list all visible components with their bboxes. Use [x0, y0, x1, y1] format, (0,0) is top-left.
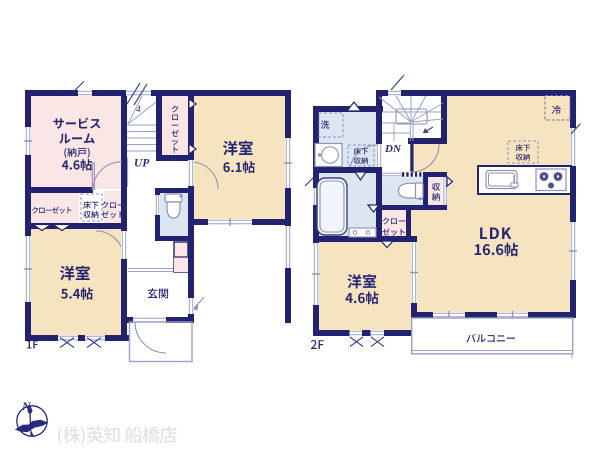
svg-text:UP: UP: [134, 158, 150, 170]
svg-text:4: 4: [136, 105, 141, 115]
svg-text:DN: DN: [384, 143, 402, 155]
